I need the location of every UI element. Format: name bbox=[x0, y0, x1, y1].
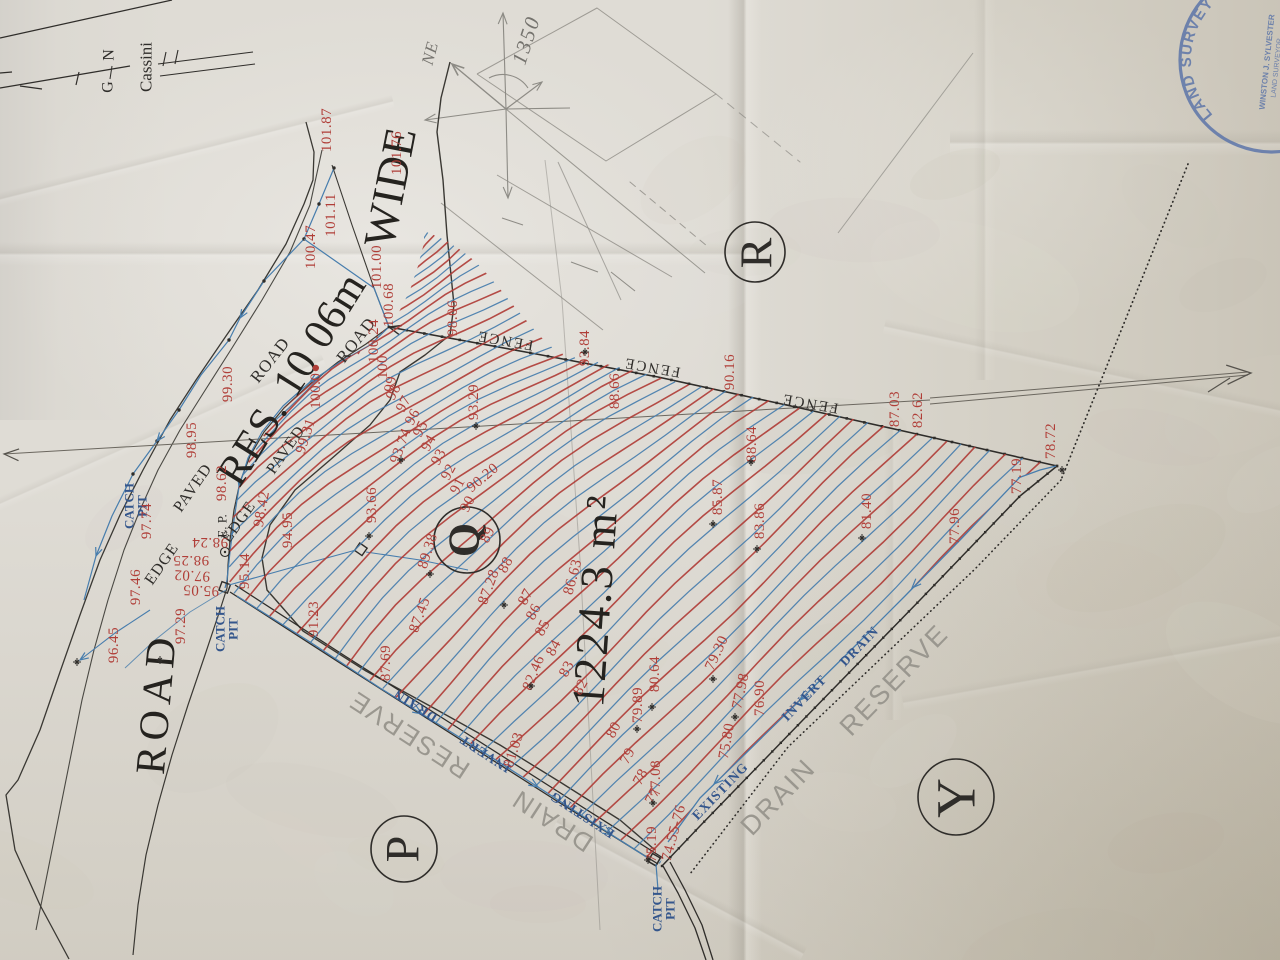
svg-text:88.64: 88.64 bbox=[744, 426, 760, 462]
svg-text:85.87: 85.87 bbox=[710, 479, 726, 515]
svg-text:98.24: 98.24 bbox=[192, 534, 228, 550]
svg-text:PIT: PIT bbox=[226, 618, 241, 640]
svg-text:98.62: 98.62 bbox=[214, 465, 230, 501]
svg-text:PIT: PIT bbox=[663, 898, 678, 920]
svg-text:77.08: 77.08 bbox=[648, 760, 664, 796]
svg-text:93.66: 93.66 bbox=[364, 487, 380, 523]
svg-text:76.90: 76.90 bbox=[752, 680, 768, 716]
svg-text:97.02: 97.02 bbox=[173, 566, 210, 584]
svg-text:N: N bbox=[101, 49, 118, 61]
svg-text:98.06: 98.06 bbox=[445, 300, 461, 336]
svg-text:80.64: 80.64 bbox=[647, 656, 663, 692]
svg-text:95.05: 95.05 bbox=[183, 581, 220, 598]
svg-text:77.96: 77.96 bbox=[947, 508, 963, 544]
svg-text:78.72: 78.72 bbox=[1043, 423, 1059, 459]
svg-text:99.30: 99.30 bbox=[220, 366, 236, 402]
svg-text:95.14: 95.14 bbox=[237, 553, 253, 589]
svg-text:83.86: 83.86 bbox=[752, 503, 768, 539]
svg-text:87.03: 87.03 bbox=[887, 391, 903, 427]
svg-text:100.0●: 100.0● bbox=[308, 363, 324, 409]
svg-text:90.16: 90.16 bbox=[722, 354, 738, 390]
svg-text:101.87: 101.87 bbox=[319, 108, 335, 152]
svg-text:101.00: 101.00 bbox=[369, 245, 385, 289]
svg-text:88.66: 88.66 bbox=[607, 373, 623, 409]
svg-text:75.19: 75.19 bbox=[644, 826, 660, 862]
svg-text:100.68: 100.68 bbox=[381, 283, 397, 327]
svg-text:93.29: 93.29 bbox=[466, 384, 482, 420]
svg-text:77.19: 77.19 bbox=[1009, 458, 1025, 494]
svg-text:100.47: 100.47 bbox=[303, 225, 319, 269]
svg-text:100: 100 bbox=[375, 355, 391, 379]
svg-text:97.29: 97.29 bbox=[173, 608, 189, 644]
svg-text:97.74: 97.74 bbox=[139, 503, 155, 539]
svg-text:79.89: 79.89 bbox=[630, 687, 646, 723]
svg-text:81.40: 81.40 bbox=[859, 493, 875, 529]
svg-text:G: G bbox=[100, 81, 117, 93]
svg-text:91.23: 91.23 bbox=[306, 601, 322, 637]
svg-text:Cassini: Cassini bbox=[137, 42, 156, 92]
svg-text:R: R bbox=[731, 237, 782, 268]
svg-text:101.76: 101.76 bbox=[389, 131, 405, 175]
svg-text:87.69: 87.69 bbox=[378, 645, 394, 681]
svg-text:97.46: 97.46 bbox=[128, 569, 144, 605]
svg-text:101.11: 101.11 bbox=[323, 193, 339, 237]
svg-text:98.25: 98.25 bbox=[173, 552, 209, 568]
svg-text:94.95: 94.95 bbox=[280, 512, 296, 548]
svg-text:96.45: 96.45 bbox=[106, 627, 122, 663]
svg-text:82.62: 82.62 bbox=[910, 392, 926, 428]
svg-text:P: P bbox=[377, 836, 430, 863]
svg-text:Y: Y bbox=[926, 778, 987, 818]
svg-text:98.95: 98.95 bbox=[184, 422, 200, 458]
